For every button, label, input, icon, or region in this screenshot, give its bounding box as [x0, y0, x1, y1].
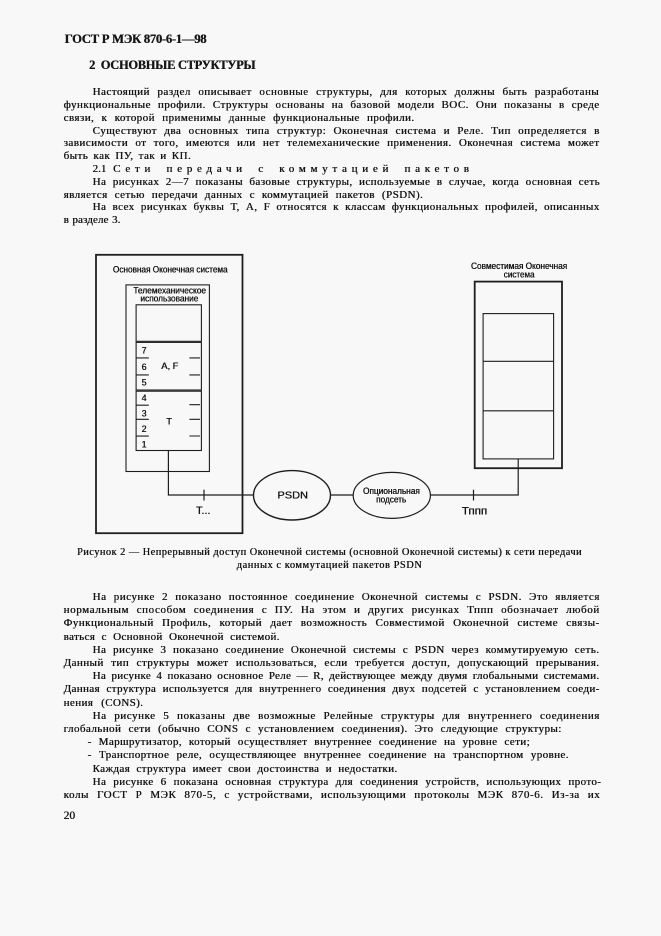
- svg-text:2: 2: [142, 424, 147, 434]
- svg-text:7: 7: [142, 346, 147, 356]
- svg-text:использование: использование: [140, 294, 198, 304]
- svg-text:4: 4: [142, 393, 147, 403]
- svg-text:подсеть: подсеть: [376, 494, 406, 504]
- svg-text:Т...: Т...: [196, 505, 210, 517]
- svg-text:PSDN: PSDN: [277, 491, 308, 502]
- svg-text:3: 3: [142, 409, 147, 419]
- svg-text:система: система: [504, 270, 535, 280]
- svg-text:6: 6: [142, 362, 147, 372]
- svg-text:A, F: A, F: [161, 361, 178, 371]
- svg-text:Тппп: Тппп: [462, 506, 487, 518]
- svg-text:T: T: [166, 417, 172, 427]
- svg-text:Основная Оконечная система: Основная Оконечная система: [113, 264, 228, 274]
- svg-text:1: 1: [142, 439, 147, 449]
- svg-text:5: 5: [142, 378, 147, 388]
